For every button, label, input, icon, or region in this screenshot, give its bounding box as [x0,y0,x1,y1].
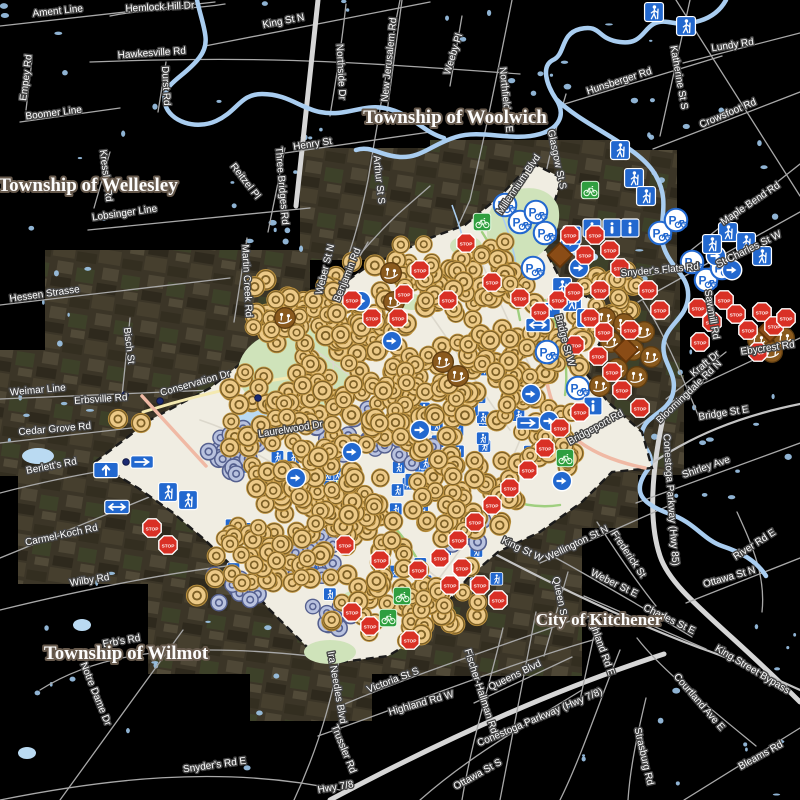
point-marker[interactable] [255,395,262,402]
tree-marker[interactable] [522,368,539,385]
stop-sign-marker[interactable] [159,536,177,554]
tree-marker[interactable] [322,569,339,586]
stop-sign-marker[interactable] [613,381,631,399]
trail-sign-marker[interactable] [476,432,489,445]
pond-speck [283,238,289,244]
playground-marker[interactable] [641,347,662,368]
pond-speck [262,1,268,6]
pond-speck [285,228,291,234]
tree-marker[interactable] [223,413,240,430]
trail-sign-marker[interactable] [159,483,178,502]
trail-sign-marker[interactable] [637,187,656,206]
tree-marker[interactable] [465,451,484,470]
pond-speck [605,23,613,25]
tree-marker[interactable] [392,428,411,447]
tree-marker[interactable] [415,236,432,253]
stop-sign-marker[interactable] [589,347,607,365]
tree-marker[interactable] [435,597,453,615]
tree-marker[interactable] [480,330,500,350]
stop-sign-marker[interactable] [449,531,467,549]
pond-speck [67,313,69,317]
playground-marker[interactable] [381,263,402,284]
stop-sign-marker[interactable] [483,496,501,514]
tree-marker[interactable] [331,325,350,344]
tree-marker[interactable] [327,304,347,324]
tree-marker[interactable] [444,467,462,485]
boundary-label: City of Kitchener [536,610,663,629]
tree-marker[interactable] [338,504,359,525]
pond-speck [683,124,690,129]
tree-marker[interactable] [323,611,341,629]
tree-marker[interactable] [293,569,310,586]
tree-marker[interactable] [403,500,422,519]
tree-marker[interactable] [344,468,364,488]
tree-marker[interactable] [383,512,402,531]
tree-marker[interactable] [272,535,290,553]
pond-speck [786,646,789,649]
stop-sign-marker[interactable] [536,439,554,457]
bike-route-sign-marker[interactable] [556,449,573,466]
up-arrow-sign-marker[interactable] [94,462,119,477]
tree-marker-gray[interactable] [242,592,258,608]
stop-sign-marker[interactable] [571,403,589,421]
stop-sign-marker[interactable] [777,309,795,327]
stop-sign-marker[interactable] [511,289,529,307]
stop-sign-marker[interactable] [595,323,613,341]
tree-marker[interactable] [220,379,240,399]
bike-parking-marker[interactable] [534,222,557,245]
tree-marker[interactable] [323,481,340,498]
tree-marker-gray[interactable] [228,466,244,482]
tree-marker[interactable] [323,415,341,433]
bike-parking-marker[interactable] [525,201,548,224]
pond-speck [293,170,297,174]
pond-speck [649,135,654,140]
pond-speck [743,742,747,746]
pond-speck [771,394,774,399]
tree-marker[interactable] [292,529,311,548]
boundary-label: Township of Wellesley [0,175,178,196]
stop-sign-marker[interactable] [389,309,407,327]
pond-speck [635,249,643,251]
pond-speck [487,10,491,16]
bike-parking-marker[interactable] [522,257,545,280]
pond-speck [561,61,568,64]
tree-marker[interactable] [496,233,514,251]
stop-sign-marker[interactable] [621,321,639,339]
pond-speck [537,71,543,76]
pond-speck [689,349,692,354]
pond-speck [672,688,680,694]
tree-marker[interactable] [464,468,485,489]
tree-marker[interactable] [366,498,383,515]
direction-arrow-marker[interactable] [552,471,571,490]
tree-marker[interactable] [267,291,285,309]
pond-speck [753,423,759,426]
tree-marker[interactable] [366,571,387,592]
pond-speck [319,128,323,132]
direction-arrow-marker[interactable] [410,420,429,439]
pond-speck [531,91,537,96]
stop-sign-marker[interactable] [336,536,354,554]
tree-marker[interactable] [205,568,224,587]
tree-marker[interactable] [382,531,401,550]
trail-sign-marker[interactable] [677,17,696,36]
direction-arrow-marker[interactable] [382,331,401,350]
pond-speck [793,633,796,637]
tree-marker-gray[interactable] [200,443,216,459]
pond-speck [582,754,585,756]
bike-parking-marker[interactable] [665,209,688,232]
tree-marker[interactable] [267,551,286,570]
pond-speck [57,341,63,347]
pond-speck [702,493,708,497]
trail-sign-marker[interactable] [645,3,664,22]
stop-sign-marker[interactable] [466,513,484,531]
pond-speck [274,228,277,232]
trail-sign-marker[interactable] [611,141,630,160]
pond-speck [264,625,271,630]
pond-speck [550,74,553,77]
bike-route-sign-marker[interactable] [581,181,598,198]
pond-speck [62,70,68,75]
pond-speck [760,165,767,169]
boundary-label: Township of Woolwich [363,107,547,128]
tree-marker[interactable] [108,409,127,428]
trail-sign-marker[interactable] [179,491,198,510]
pond-speck [564,84,572,90]
pond-speck [757,140,762,146]
road-label: Durst Rd [159,66,172,106]
tree-marker[interactable] [335,391,352,408]
stop-sign-marker[interactable] [395,285,413,303]
pond-speck [126,728,130,733]
tree-marker[interactable] [486,362,505,381]
tree-marker[interactable] [610,289,628,307]
pond-speck [0,3,8,9]
pond-speck [650,98,655,102]
stop-sign-marker[interactable] [651,301,669,319]
pond-speck [205,621,211,623]
pond-speck [61,402,68,405]
pond-speck [78,157,82,159]
pond-speck [773,794,780,796]
bike-parking-marker[interactable] [567,377,590,400]
tree-marker[interactable] [469,593,487,611]
stop-sign-marker[interactable] [457,234,475,252]
tree-marker[interactable] [245,319,262,336]
tree-marker[interactable] [473,247,490,264]
tree-marker[interactable] [371,469,389,487]
pond-speck [631,98,638,104]
tree-marker-gray[interactable] [211,595,227,611]
tree-marker[interactable] [220,438,239,457]
tree-marker-gray[interactable] [306,599,321,614]
stop-sign-marker[interactable] [551,419,569,437]
stop-sign-marker[interactable] [586,226,604,244]
pond-speck [774,667,780,670]
pond-speck [232,203,237,208]
tree-marker[interactable] [340,355,357,372]
pond-speck [86,409,94,412]
stop-sign-marker[interactable] [576,246,594,264]
pond-speck [54,32,62,35]
boundary-label: Township of Wilmot [44,643,209,664]
stop-sign-marker[interactable] [519,461,537,479]
stop-sign-marker[interactable] [441,576,459,594]
stop-sign-marker[interactable] [343,603,361,621]
stop-sign-marker[interactable] [489,591,507,609]
pond-speck [121,131,125,137]
direction-arrow-marker[interactable] [342,442,361,461]
double-arrow-sign-marker[interactable] [105,500,130,513]
right-arrow-sign-marker[interactable] [131,456,154,468]
pond-speck [152,104,157,110]
tree-marker[interactable] [186,585,207,606]
tree-marker[interactable] [308,447,329,468]
pond-speck [699,440,706,445]
stop-sign-marker[interactable] [501,479,519,497]
point-marker[interactable] [123,459,130,466]
pond-speck [256,711,263,716]
pond-speck [728,495,735,499]
tree-marker[interactable] [417,292,435,310]
stop-sign-marker[interactable] [409,561,427,579]
tree-marker[interactable] [437,426,457,446]
info-sign-marker[interactable] [603,219,621,237]
pond-speck [230,181,234,184]
stop-sign-marker[interactable] [691,333,709,351]
pond-speck [23,414,30,417]
stop-sign-marker[interactable] [483,273,501,291]
bike-route-sign-marker[interactable] [473,213,490,230]
pond-speck [785,454,792,460]
stop-sign-marker[interactable] [143,519,161,537]
pond-speck [745,748,748,752]
tree-marker[interactable] [290,487,308,505]
stop-sign-marker[interactable] [371,551,389,569]
stop-sign-marker[interactable] [453,559,471,577]
tree-marker[interactable] [250,519,267,536]
stop-sign-marker[interactable] [363,309,381,327]
tree-marker[interactable] [370,414,389,433]
tree-marker[interactable] [392,236,410,254]
pond-speck [70,677,76,682]
stop-sign-marker[interactable] [471,576,489,594]
bike-parking-marker[interactable] [536,341,559,364]
stop-sign-marker[interactable] [431,549,449,567]
right-arrow-sign-marker[interactable] [517,417,540,429]
playground-marker[interactable] [448,366,469,387]
tree-marker[interactable] [500,329,519,348]
tree-marker[interactable] [298,550,316,568]
bike-route-sign-marker[interactable] [379,609,396,626]
pond-speck [84,267,91,271]
trail-sign-marker[interactable] [703,235,722,254]
stop-sign-marker[interactable] [739,321,757,339]
direction-arrow-marker[interactable] [521,384,540,403]
bike-route-sign-marker[interactable] [393,587,410,604]
stop-sign-marker[interactable] [581,309,599,327]
stop-sign-marker[interactable] [361,617,379,635]
stop-sign-marker[interactable] [439,291,457,309]
stop-sign-marker[interactable] [603,363,621,381]
playground-marker[interactable] [275,308,296,329]
pond-speck [706,437,714,441]
tree-marker[interactable] [490,515,510,535]
trail-sign-marker[interactable] [625,169,644,188]
stop-sign-marker[interactable] [411,261,429,279]
tree-marker[interactable] [498,396,516,414]
stop-sign-marker[interactable] [601,241,619,259]
pond-speck [299,246,303,252]
trail-sign-marker[interactable] [391,484,404,497]
tree-marker[interactable] [429,450,449,470]
tree-marker[interactable] [312,380,333,401]
stop-sign-marker[interactable] [531,303,549,321]
tree-marker[interactable] [426,407,445,426]
tree-marker[interactable] [397,374,415,392]
tree-marker[interactable] [344,375,363,394]
direction-arrow-marker[interactable] [286,468,305,487]
tree-marker[interactable] [207,547,225,565]
pond-speck [346,8,349,12]
tree-marker[interactable] [233,546,250,563]
stop-sign-marker[interactable] [727,305,745,323]
map-svg: STOP P [0,0,800,800]
tree-marker[interactable] [374,381,394,401]
tree-marker[interactable] [307,515,325,533]
pond-speck [735,470,740,473]
pond-speck [54,270,59,276]
stop-sign-marker[interactable] [401,631,419,649]
tree-marker[interactable] [233,574,251,592]
pond-speck [1,13,9,18]
pond-speck [755,624,758,629]
info-sign-marker[interactable] [621,219,639,237]
pond-speck [582,756,586,761]
pond-speck [28,226,34,231]
tree-marker[interactable] [264,482,282,500]
trail-sign-marker[interactable] [490,573,503,586]
stop-sign-marker[interactable] [639,281,657,299]
stop-sign-marker[interactable] [591,281,609,299]
stop-sign-marker[interactable] [631,399,649,417]
pond-speck [445,16,449,21]
stop-sign-marker[interactable] [565,283,583,301]
pond-speck [216,100,221,103]
map-canvas[interactable]: STOP P [0,0,800,800]
tree-marker[interactable] [454,405,475,426]
pond-speck [649,40,652,42]
pond-speck [676,781,680,785]
tree-marker[interactable] [237,364,254,381]
pond-speck [35,690,41,695]
stop-sign-marker[interactable] [561,226,579,244]
tree-marker[interactable] [131,413,150,432]
pond-speck [273,674,279,679]
tree-marker[interactable] [293,376,312,395]
pond-speck [658,718,664,724]
pond-speck [772,213,778,219]
tree-marker[interactable] [435,515,454,534]
pond-speck [44,625,48,630]
